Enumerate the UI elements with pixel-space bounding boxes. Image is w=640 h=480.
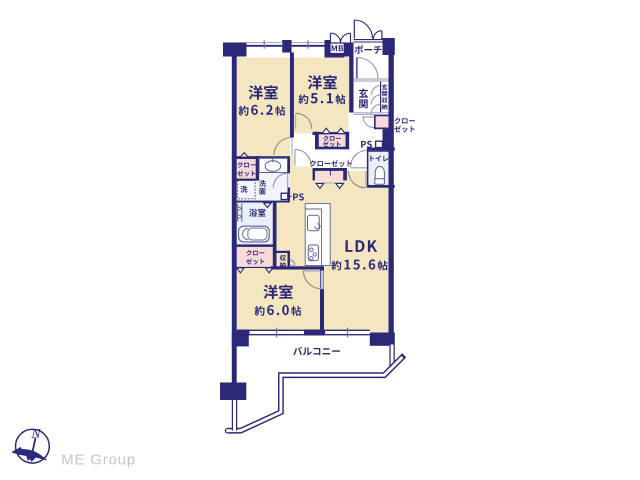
svg-text:ME Group: ME Group	[61, 452, 136, 469]
